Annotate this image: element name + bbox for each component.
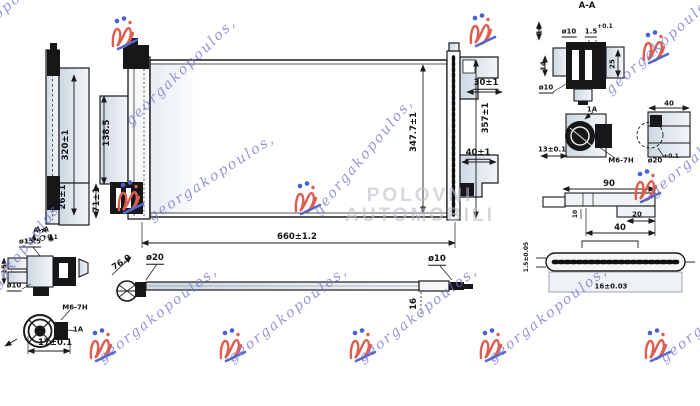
dim-overall-width: 660±1.2 <box>277 233 317 242</box>
center-watermark: POLOVNI AUTOMOBILI <box>325 186 515 226</box>
dim-bottom-offset: 40±1 <box>466 149 491 160</box>
dim-fitting-height: 71±1 <box>93 188 102 213</box>
dim-section-pipe-dia: ø10 <box>562 29 577 38</box>
center-watermark-line1: POLOVNI <box>325 186 515 206</box>
dim-section-height: 25 <box>610 59 617 69</box>
dim-bore-tol: +0.1 <box>663 154 679 160</box>
dim-pipe-outlet-dia: ø10 <box>428 255 446 266</box>
dim-bracket-step: 20 <box>632 212 642 219</box>
dim-section-gap-tol: +0.1 <box>597 24 613 30</box>
dim-overall-height: 357±1 <box>482 103 491 134</box>
dim-bracket-height: 138.5 <box>103 120 112 147</box>
dim-section-gap: 1.5 <box>585 29 597 38</box>
bore-fitting-detail <box>637 108 690 157</box>
dim-fin-pitch: 1.5±0.05 <box>524 242 530 272</box>
dim-bore-dia: ø20 <box>648 158 663 165</box>
center-watermark-line2: AUTOMOBILI <box>325 206 515 226</box>
dim-top-offset: 30±1 <box>474 79 499 90</box>
thread-inlet: M6-7H <box>608 158 633 165</box>
dim-core-height: 347.7±1 <box>410 112 419 152</box>
callout-flange-1a: 1A <box>73 327 83 334</box>
thread-flange: M6-7H <box>62 305 87 312</box>
section-title: A-A <box>579 2 596 11</box>
dim-section-wall: 10 <box>537 25 544 35</box>
dim-flange-tol: +0.1 <box>42 235 58 241</box>
callout-inlet-1a: 1A <box>587 107 597 114</box>
dim-section-depth: 14 <box>541 61 548 71</box>
dim-inlet-offset: 13±0.1 <box>538 147 566 154</box>
dim-flange-pipe-dia: ø10 <box>7 283 22 292</box>
dim-bracket-base: 40 <box>614 224 626 233</box>
dim-bracket-tab: 10 <box>573 210 579 218</box>
dim-bracket-length: 90 <box>603 180 615 189</box>
condenser-technical-drawing: POLOVNI AUTOMOBILI georgakopoulos, georg… <box>0 0 700 406</box>
dim-flange-length: 17±0.1 <box>38 339 72 348</box>
dim-left-height: 320±1 <box>62 130 71 161</box>
dim-pipe-inlet-dia: ø20 <box>146 254 164 265</box>
watermark-logo <box>471 13 495 46</box>
dim-section-pipe-dia-bottom: ø10 <box>539 85 554 94</box>
dim-bore-width: 40 <box>664 101 674 108</box>
